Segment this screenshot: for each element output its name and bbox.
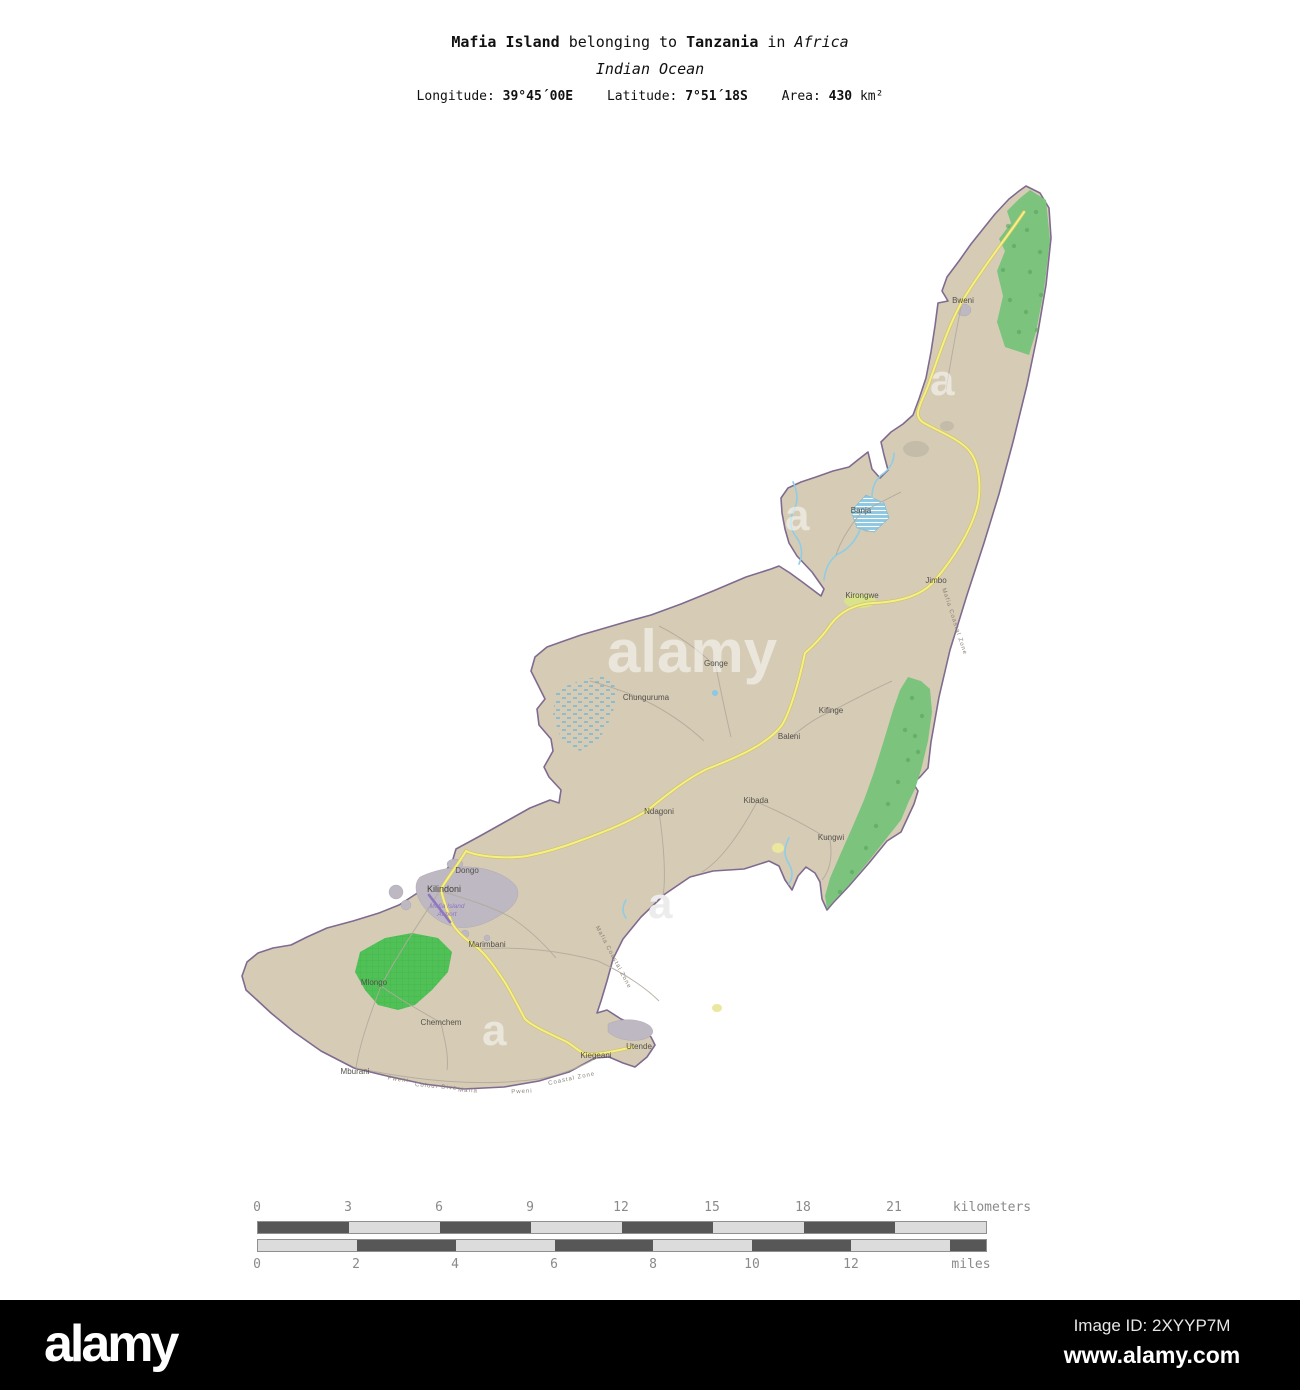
mi-tick: 10 — [744, 1257, 760, 1272]
footer-credits: Image ID: 2XYYP7M www.alamy.com — [1032, 1316, 1272, 1369]
label-kibada: Kibada — [744, 796, 769, 805]
label-jimbo: Jimbo — [925, 576, 947, 585]
mi-tick: 0 — [253, 1257, 261, 1272]
label-kungwi: Kungwi — [818, 833, 844, 842]
miles-bar — [257, 1239, 987, 1252]
svg-text:a: a — [930, 356, 955, 405]
mi-tick: 8 — [649, 1257, 657, 1272]
svg-text:Pweni: Pweni — [511, 1088, 533, 1095]
km-tick: 15 — [704, 1200, 720, 1215]
label-mburani: Mburani — [341, 1067, 370, 1076]
svg-text:alamy: alamy — [607, 618, 778, 685]
label-marimbani: Marimbani — [468, 940, 506, 949]
km-unit-label: kilometers — [953, 1200, 1031, 1215]
svg-text:a: a — [785, 491, 810, 540]
mi-tick: 6 — [550, 1257, 558, 1272]
label-gonge: Gonge — [704, 659, 729, 668]
kilometers-bar — [257, 1221, 987, 1234]
label-chemchem: Chemchem — [421, 1018, 462, 1027]
label-mlongo: Mlongo — [361, 978, 388, 987]
label-chunguruma: Chunguruma — [623, 693, 670, 702]
svg-text:a: a — [482, 1006, 507, 1055]
km-tick: 0 — [253, 1200, 261, 1215]
clearing-patch-2 — [712, 1004, 722, 1012]
svg-text:Mafia Island: Mafia Island — [429, 903, 464, 910]
clearing-patch-1 — [772, 843, 784, 853]
svg-text:a: a — [648, 879, 673, 928]
km-tick: 12 — [613, 1200, 629, 1215]
mi-tick: 2 — [352, 1257, 360, 1272]
km-tick: 3 — [344, 1200, 352, 1215]
mi-tick: 12 — [843, 1257, 859, 1272]
label-kiegeani: Kiegeani — [580, 1051, 611, 1060]
label-baleni: Baleni — [778, 732, 800, 741]
km-tick: 18 — [795, 1200, 811, 1215]
svg-text:Mafia: Mafia — [458, 1088, 478, 1095]
label-kifinge: Kifinge — [819, 706, 844, 715]
label-banja: Banja — [851, 506, 872, 515]
label-bweni: Bweni — [952, 296, 974, 305]
km-tick: 6 — [435, 1200, 443, 1215]
image-id-text: Image ID: 2XYYP7M — [1032, 1316, 1272, 1336]
mi-tick: 4 — [451, 1257, 459, 1272]
label-kirongwe: Kirongwe — [845, 591, 879, 600]
alamy-footer-bar: alamy Image ID: 2XYYP7M www.alamy.com — [0, 1300, 1300, 1390]
pond — [712, 690, 718, 696]
alamy-url-text: www.alamy.com — [1032, 1342, 1272, 1369]
label-dongo: Dongo — [455, 866, 479, 875]
label-ndagoni: Ndagoni — [644, 807, 674, 816]
label-utende: Utende — [626, 1042, 652, 1051]
label-kilindoni: Kilindoni — [427, 884, 461, 894]
svg-text:Airport: Airport — [436, 911, 457, 918]
km-tick: 9 — [526, 1200, 534, 1215]
alamy-logo: alamy — [44, 1314, 176, 1374]
mi-unit-label: miles — [951, 1257, 990, 1272]
km-tick: 21 — [886, 1200, 902, 1215]
island-map: alamy a a a a Bweni Banja Jimbo Kirongwe… — [0, 0, 1300, 1390]
